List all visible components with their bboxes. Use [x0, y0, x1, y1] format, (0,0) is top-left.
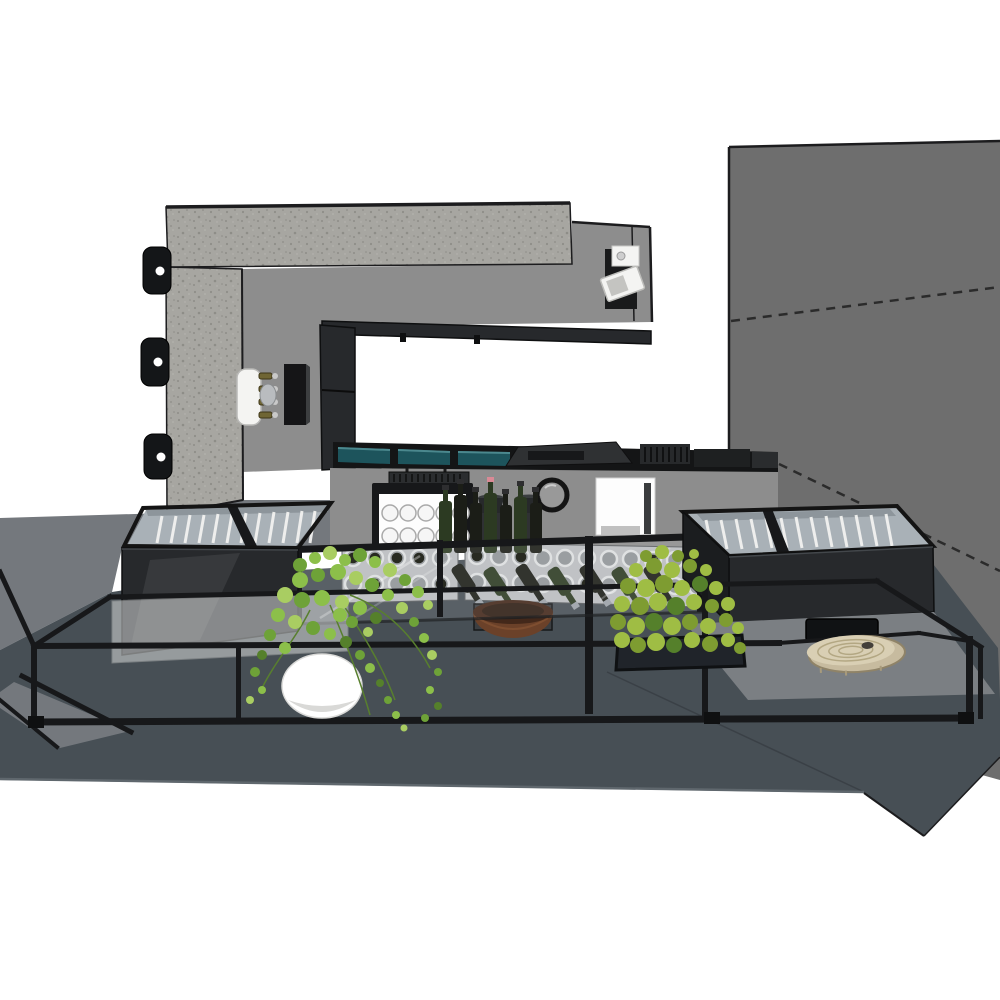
railing-post: [31, 646, 37, 724]
menu-board: [284, 364, 310, 425]
beer-tap-tower: [237, 369, 278, 425]
railing-post: [978, 647, 983, 719]
service-window: [596, 478, 655, 535]
concrete-column: [166, 267, 243, 514]
railing-connector: [704, 712, 720, 724]
railing-connector: [28, 716, 44, 728]
glass-case-post: [437, 540, 443, 617]
bar-design-render: [0, 0, 1000, 1000]
railing-post: [236, 648, 241, 722]
render-viewport: [0, 0, 1000, 1000]
glass-case-leg: [585, 536, 593, 714]
railing-connector: [958, 712, 974, 724]
wall-brackets: [141, 247, 172, 479]
frame-hook: [400, 333, 406, 342]
tap-handle: [260, 384, 276, 406]
concrete-beam: [166, 203, 572, 267]
railing-post: [966, 636, 973, 720]
frame-hook: [474, 335, 480, 344]
